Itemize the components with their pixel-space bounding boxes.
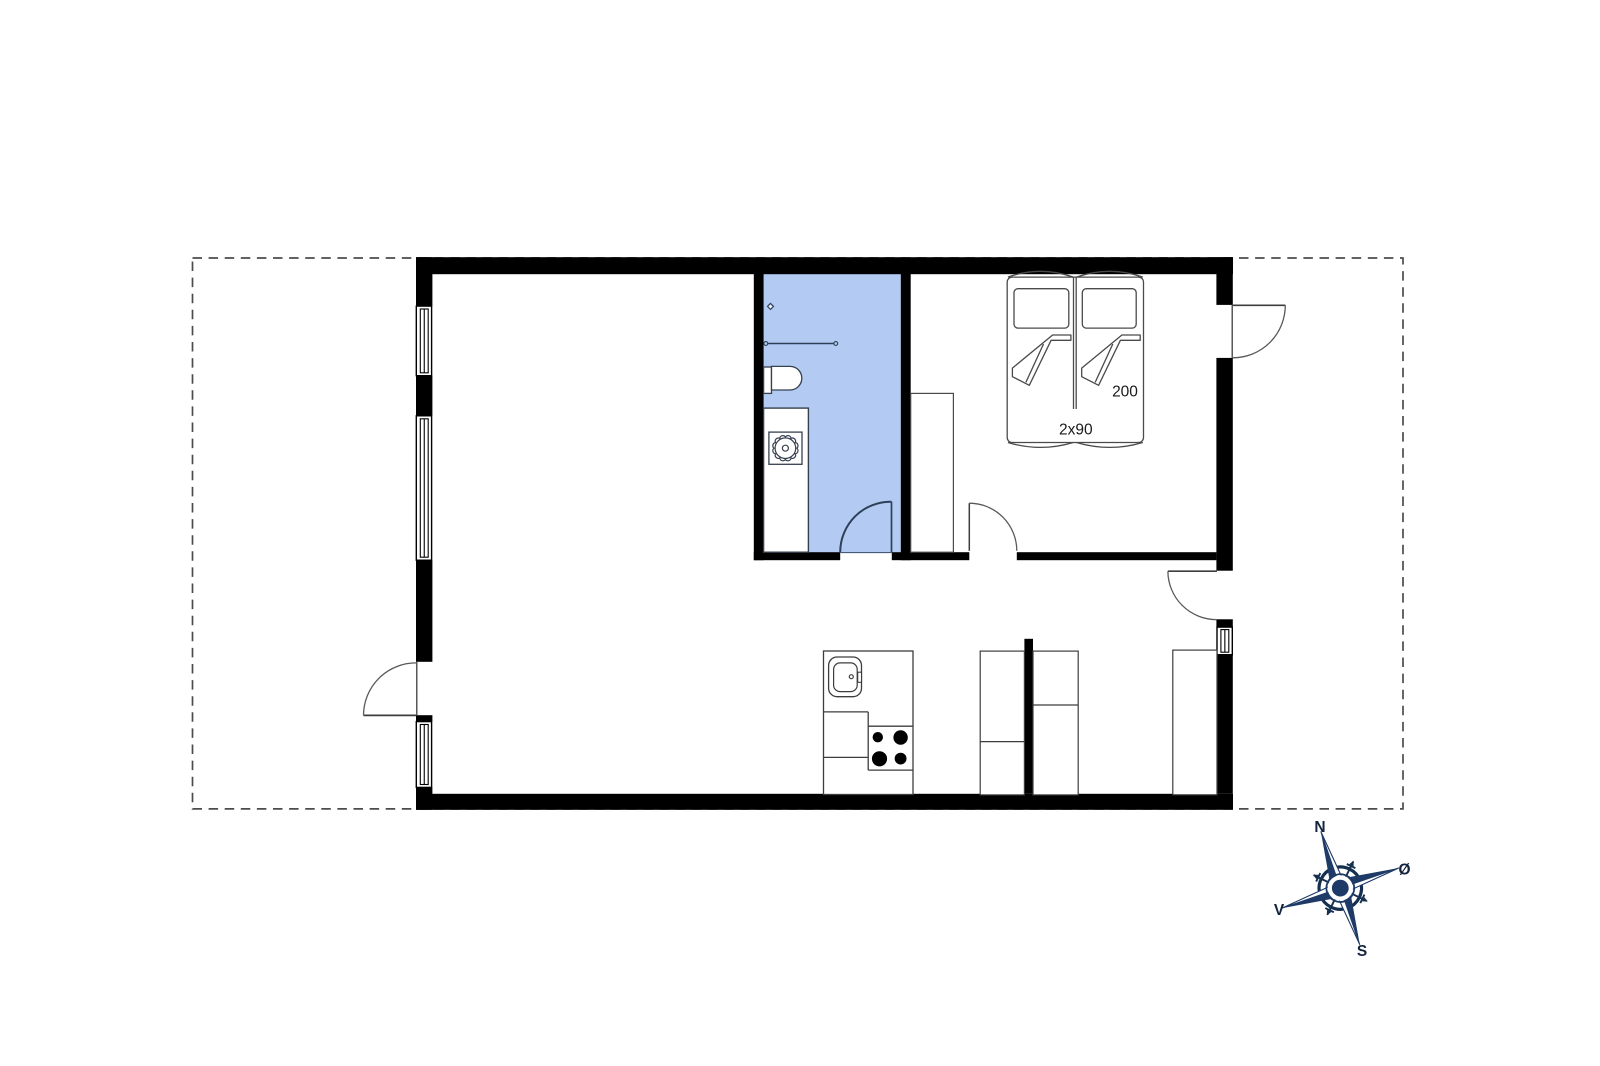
svg-text:S: S	[1357, 943, 1367, 960]
svg-text:N: N	[1314, 819, 1325, 836]
svg-text:200: 200	[1112, 384, 1138, 401]
svg-text:V: V	[1274, 902, 1285, 919]
svg-text:2x90: 2x90	[1059, 422, 1093, 439]
svg-text:Ø: Ø	[1398, 862, 1410, 879]
